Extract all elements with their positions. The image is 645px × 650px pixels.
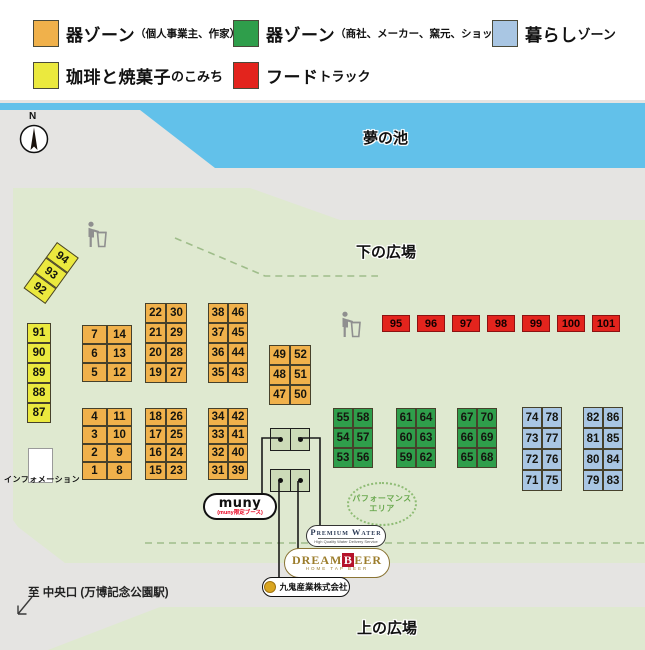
legend-item-zone-food-truck: フードトラック bbox=[233, 62, 371, 88]
muny-logo-text: muny bbox=[219, 497, 262, 510]
legend-sub-label: （商社、メーカー、窯元、ショップ） bbox=[335, 26, 513, 41]
booth-81: 81 bbox=[583, 428, 603, 449]
zone-food-truck-swatch bbox=[233, 62, 259, 89]
booth-11: 11 bbox=[107, 408, 132, 426]
booth-10: 10 bbox=[107, 426, 132, 444]
booth-60: 60 bbox=[396, 428, 416, 448]
booth-78: 78 bbox=[542, 407, 562, 428]
maker-3: 677066696568 bbox=[457, 408, 497, 468]
booth-1: 1 bbox=[82, 462, 107, 480]
booth-33: 33 bbox=[208, 426, 228, 444]
trash-icon-upper bbox=[84, 221, 108, 248]
pottery-b1: 2230212920281927 bbox=[145, 303, 187, 383]
living-1: 7478737772767175 bbox=[522, 407, 562, 491]
booth-88: 88 bbox=[27, 383, 51, 403]
pottery-d: 495248514750 bbox=[269, 345, 311, 405]
booth-52: 52 bbox=[290, 345, 311, 365]
food-truck-97: 97 bbox=[452, 315, 480, 332]
booth-46: 46 bbox=[228, 303, 248, 323]
booth-84: 84 bbox=[603, 449, 623, 470]
booth-73: 73 bbox=[522, 428, 542, 449]
booth-12: 12 bbox=[107, 363, 132, 382]
information-label: インフォメーション bbox=[4, 474, 80, 485]
compass-icon bbox=[19, 124, 49, 154]
food-truck-100: 100 bbox=[557, 315, 585, 332]
booth-53: 53 bbox=[333, 448, 353, 468]
booth-66: 66 bbox=[457, 428, 477, 448]
booth-80: 80 bbox=[583, 449, 603, 470]
booth-35: 35 bbox=[208, 363, 228, 383]
pottery-a1: 714613512 bbox=[82, 325, 132, 382]
legend-small-label: のこみち bbox=[171, 66, 223, 85]
legend-item-zone-utsuwa-shop: 器ゾーン（商社、メーカー、窯元、ショップ） bbox=[233, 20, 514, 46]
zone-kurashi-swatch bbox=[492, 20, 518, 47]
booth-22: 22 bbox=[145, 303, 166, 323]
legend-small-label: ゾーン bbox=[578, 24, 616, 43]
sponsor-booth-cell bbox=[290, 470, 309, 491]
booth-31: 31 bbox=[208, 462, 228, 480]
sponsor-booth-cell bbox=[271, 429, 290, 450]
booth-62: 62 bbox=[416, 448, 436, 468]
booth-25: 25 bbox=[166, 426, 187, 444]
booth-37: 37 bbox=[208, 323, 228, 343]
dreambeer-logo-subtext: HOME TAP BEER bbox=[306, 566, 369, 572]
legend-sub-label: （個人事業主、作家） bbox=[135, 26, 240, 41]
booth-70: 70 bbox=[477, 408, 497, 428]
event-map: 器ゾーン（個人事業主、作家）器ゾーン（商社、メーカー、窯元、ショップ）暮らしゾー… bbox=[0, 0, 645, 650]
zone-utsuwa-shop-swatch bbox=[233, 20, 259, 47]
booth-65: 65 bbox=[457, 448, 477, 468]
booth-13: 13 bbox=[107, 344, 132, 363]
booth-43: 43 bbox=[228, 363, 248, 383]
muny-logo-subtext: (muny限定ブース) bbox=[217, 510, 263, 516]
booth-dot bbox=[278, 437, 283, 442]
booth-50: 50 bbox=[290, 385, 311, 405]
booth-9: 9 bbox=[107, 444, 132, 462]
sponsor-booth-cell bbox=[290, 429, 309, 450]
booth-71: 71 bbox=[522, 470, 542, 491]
booth-42: 42 bbox=[228, 408, 248, 426]
legend-small-label: トラック bbox=[319, 66, 371, 85]
food-truck-95: 95 bbox=[382, 315, 410, 332]
booth-86: 86 bbox=[603, 407, 623, 428]
booth-75: 75 bbox=[542, 470, 562, 491]
booth-82: 82 bbox=[583, 407, 603, 428]
booth-57: 57 bbox=[353, 428, 373, 448]
booth-49: 49 bbox=[269, 345, 290, 365]
booth-89: 89 bbox=[27, 363, 51, 383]
maker-1: 555854575356 bbox=[333, 408, 373, 468]
booth-16: 16 bbox=[145, 444, 166, 462]
maker-2: 616460635962 bbox=[396, 408, 436, 468]
legend-item-zone-utsuwa-individual: 器ゾーン（個人事業主、作家） bbox=[33, 20, 240, 46]
sponsor-booth-1 bbox=[270, 428, 310, 451]
booth-68: 68 bbox=[477, 448, 497, 468]
booth-85: 85 bbox=[603, 428, 623, 449]
booth-67: 67 bbox=[457, 408, 477, 428]
booth-48: 48 bbox=[269, 365, 290, 385]
pottery-c1: 3846374536443543 bbox=[208, 303, 248, 383]
booth-61: 61 bbox=[396, 408, 416, 428]
pottery-a2: 4113102918 bbox=[82, 408, 132, 480]
legend-main-label: 暮らし bbox=[525, 21, 578, 46]
lower-plaza-label: 下の広場 bbox=[356, 241, 416, 262]
food-truck-99: 99 bbox=[522, 315, 550, 332]
premium-water-logo-tagline: High Quality Water Delivery Service bbox=[314, 540, 377, 544]
booth-6: 6 bbox=[82, 344, 107, 363]
booth-24: 24 bbox=[166, 444, 187, 462]
booth-83: 83 bbox=[603, 470, 623, 491]
booth-dot bbox=[298, 437, 303, 442]
booth-20: 20 bbox=[145, 343, 166, 363]
booth-2: 2 bbox=[82, 444, 107, 462]
booth-5: 5 bbox=[82, 363, 107, 382]
booth-47: 47 bbox=[269, 385, 290, 405]
booth-38: 38 bbox=[208, 303, 228, 323]
zone-utsuwa-individual-swatch bbox=[33, 20, 59, 47]
performance-area: パフォーマンス エリア bbox=[347, 482, 417, 526]
legend-item-zone-kurashi: 暮らしゾーン bbox=[492, 20, 616, 46]
booth-15: 15 bbox=[145, 462, 166, 480]
booth-91: 91 bbox=[27, 323, 51, 343]
coffee-column: 9190898887 bbox=[27, 323, 51, 423]
compass-north-label: N bbox=[29, 111, 36, 122]
booth-18: 18 bbox=[145, 408, 166, 426]
kuki-sangyo-logo: 九鬼産業株式会社 bbox=[262, 577, 350, 597]
sponsor-booth-cell bbox=[271, 470, 290, 491]
booth-36: 36 bbox=[208, 343, 228, 363]
kuki-coin-icon bbox=[264, 581, 276, 593]
pond-label: 夢の池 bbox=[363, 127, 408, 148]
booth-21: 21 bbox=[145, 323, 166, 343]
booth-79: 79 bbox=[583, 470, 603, 491]
booth-7: 7 bbox=[82, 325, 107, 344]
booth-23: 23 bbox=[166, 462, 187, 480]
booth-54: 54 bbox=[333, 428, 353, 448]
booth-72: 72 bbox=[522, 449, 542, 470]
booth-55: 55 bbox=[333, 408, 353, 428]
booth-30: 30 bbox=[166, 303, 187, 323]
booth-17: 17 bbox=[145, 426, 166, 444]
legend-item-zone-coffee-sweets: 珈琲と焼菓子のこみち bbox=[33, 62, 223, 88]
booth-dot bbox=[278, 478, 283, 483]
booth-90: 90 bbox=[27, 343, 51, 363]
living-2: 8286818580847983 bbox=[583, 407, 623, 491]
booth-3: 3 bbox=[82, 426, 107, 444]
performance-area-label: パフォーマンス bbox=[352, 494, 411, 504]
premium-water-logo-text: Premium Water bbox=[310, 528, 381, 537]
sponsor-booth-2 bbox=[270, 469, 310, 492]
booth-69: 69 bbox=[477, 428, 497, 448]
pottery-b2: 1826172516241523 bbox=[145, 408, 187, 480]
booth-32: 32 bbox=[208, 444, 228, 462]
muny-logo: muny (muny限定ブース) bbox=[203, 493, 277, 520]
legend-main-label: フード bbox=[266, 63, 319, 88]
kuki-sangyo-logo-text: 九鬼産業株式会社 bbox=[279, 581, 347, 593]
performance-area-label2: エリア bbox=[369, 504, 395, 514]
booth-14: 14 bbox=[107, 325, 132, 344]
dreambeer-b-mark: B bbox=[342, 553, 354, 567]
booth-40: 40 bbox=[228, 444, 248, 462]
booth-64: 64 bbox=[416, 408, 436, 428]
premium-water-logo: Premium Water High Quality Water Deliver… bbox=[306, 525, 386, 547]
booth-58: 58 bbox=[353, 408, 373, 428]
legend-main-label: 器ゾーン bbox=[266, 21, 335, 46]
booth-77: 77 bbox=[542, 428, 562, 449]
booth-26: 26 bbox=[166, 408, 187, 426]
booth-51: 51 bbox=[290, 365, 311, 385]
booth-63: 63 bbox=[416, 428, 436, 448]
booth-56: 56 bbox=[353, 448, 373, 468]
booth-34: 34 bbox=[208, 408, 228, 426]
booth-29: 29 bbox=[166, 323, 187, 343]
food-truck-98: 98 bbox=[487, 315, 515, 332]
booth-39: 39 bbox=[228, 462, 248, 480]
exit-label: 至 中央口 (万博記念公園駅) bbox=[28, 584, 169, 600]
booth-44: 44 bbox=[228, 343, 248, 363]
food-truck-101: 101 bbox=[592, 315, 620, 332]
booth-dot bbox=[298, 478, 303, 483]
booth-8: 8 bbox=[107, 462, 132, 480]
trash-icon-lower bbox=[338, 311, 362, 338]
booth-45: 45 bbox=[228, 323, 248, 343]
upper-plaza-label: 上の広場 bbox=[357, 617, 417, 638]
booth-87: 87 bbox=[27, 403, 51, 423]
legend-main-label: 珈琲と焼菓子 bbox=[66, 63, 171, 88]
booth-59: 59 bbox=[396, 448, 416, 468]
zone-coffee-sweets-swatch bbox=[33, 62, 59, 89]
food-truck-96: 96 bbox=[417, 315, 445, 332]
dreambeer-logo-text: DREAMBEER bbox=[292, 554, 382, 566]
booth-76: 76 bbox=[542, 449, 562, 470]
booth-19: 19 bbox=[145, 363, 166, 383]
booth-4: 4 bbox=[82, 408, 107, 426]
booth-74: 74 bbox=[522, 407, 542, 428]
dreambeer-logo: DREAMBEER HOME TAP BEER bbox=[284, 548, 390, 578]
booth-28: 28 bbox=[166, 343, 187, 363]
pottery-c2: 3442334132403139 bbox=[208, 408, 248, 480]
booth-27: 27 bbox=[166, 363, 187, 383]
legend-main-label: 器ゾーン bbox=[66, 21, 135, 46]
booth-41: 41 bbox=[228, 426, 248, 444]
